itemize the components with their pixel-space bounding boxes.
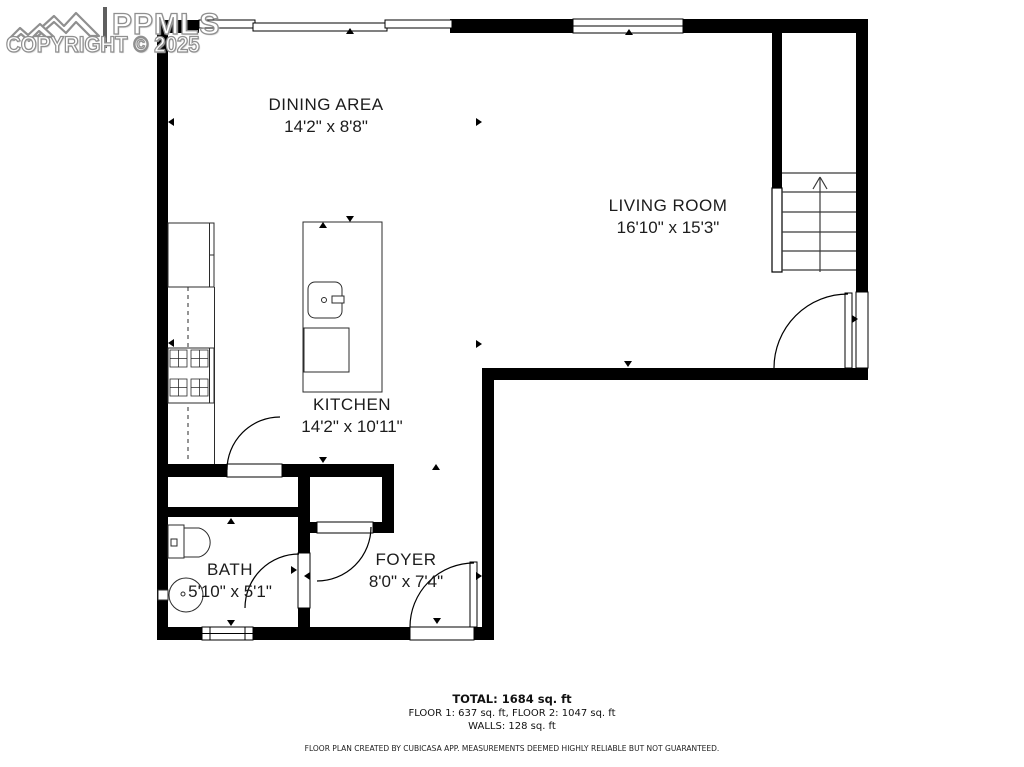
room-dims: 16'10" x 15'3" xyxy=(609,217,728,239)
marker-down-icon xyxy=(433,618,441,624)
window xyxy=(199,20,255,28)
room-name: FOYER xyxy=(369,549,443,571)
room-dims: 8'0" x 7'4" xyxy=(369,571,443,593)
marker-down-icon xyxy=(346,216,354,222)
kitchen-door xyxy=(227,417,282,477)
marker-left-icon xyxy=(168,339,174,347)
room-label-living: LIVING ROOM 16'10" x 15'3" xyxy=(609,195,728,239)
marker-right-icon xyxy=(476,118,482,126)
room-dims: 5'10" x 5'1" xyxy=(188,581,272,603)
room-dims: 14'2" x 8'8" xyxy=(268,116,383,138)
stove xyxy=(168,348,214,403)
room-label-bath: BATH 5'10" x 5'1" xyxy=(188,559,272,603)
window xyxy=(253,23,387,31)
stairs-up-arrow-icon xyxy=(813,177,827,272)
total-area: TOTAL: 1684 sq. ft xyxy=(0,693,1024,707)
kitchen-counter xyxy=(168,223,215,464)
direction-markers xyxy=(158,28,858,626)
window xyxy=(202,627,253,640)
closet-door xyxy=(317,522,373,581)
toilet-icon xyxy=(168,525,210,558)
marker-right-icon xyxy=(476,572,482,580)
room-label-kitchen: KITCHEN 14'2" x 10'11" xyxy=(301,394,402,438)
marker-down-icon xyxy=(624,361,632,367)
disclaimer-text: FLOOR PLAN CREATED BY CUBICASA APP. MEAS… xyxy=(0,744,1024,753)
room-label-dining: DINING AREA 14'2" x 8'8" xyxy=(268,94,383,138)
floor-plan-drawing xyxy=(0,0,1024,767)
wall-area: WALLS: 128 sq. ft xyxy=(0,720,1024,734)
sink-icon xyxy=(308,282,344,318)
room-name: BATH xyxy=(188,559,272,581)
staircase xyxy=(772,173,856,272)
window xyxy=(385,20,452,28)
marker-right-icon xyxy=(476,340,482,348)
marker-up-icon xyxy=(432,464,440,470)
plan-summary: TOTAL: 1684 sq. ft FLOOR 1: 637 sq. ft, … xyxy=(0,693,1024,753)
marker-down-icon xyxy=(227,620,235,626)
room-label-foyer: FOYER 8'0" x 7'4" xyxy=(369,549,443,593)
room-name: KITCHEN xyxy=(301,394,402,416)
marker-up-icon xyxy=(227,518,235,524)
living-room-side-door xyxy=(774,292,868,368)
floor-areas: FLOOR 1: 637 sq. ft, FLOOR 2: 1047 sq. f… xyxy=(0,707,1024,721)
marker-right-icon xyxy=(291,566,297,574)
room-dims: 14'2" x 10'11" xyxy=(301,416,402,438)
room-name: LIVING ROOM xyxy=(609,195,728,217)
room-name: DINING AREA xyxy=(268,94,383,116)
floor-plan-page: DINING AREA 14'2" x 8'8" LIVING ROOM 16'… xyxy=(0,0,1024,767)
island-cabinet xyxy=(304,328,349,372)
walls xyxy=(157,19,868,640)
marker-left-icon xyxy=(168,118,174,126)
kitchen-island xyxy=(303,222,382,392)
marker-down-icon xyxy=(319,457,327,463)
